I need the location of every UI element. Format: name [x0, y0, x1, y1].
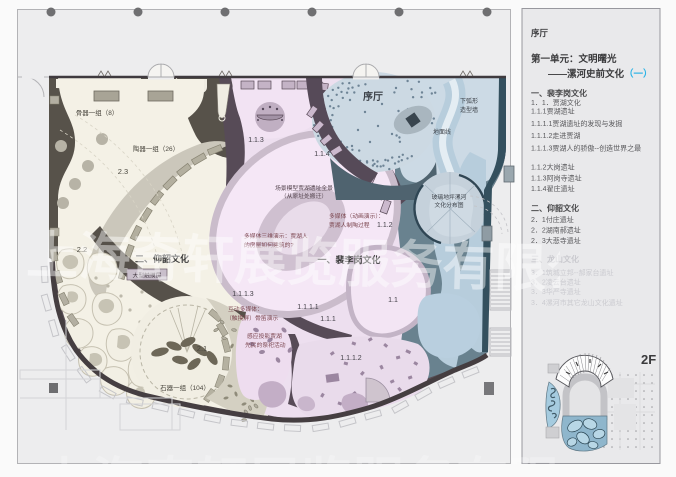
svg-text:1.1.2: 1.1.2: [377, 222, 393, 229]
svg-text:二、仰韶文化: 二、仰韶文化: [531, 203, 579, 213]
svg-text:石器一组（104）: 石器一组（104）: [160, 383, 210, 392]
svg-text:1.1.1.3贾湖人的骄傲--创造世界之最: 1.1.1.3贾湖人的骄傲--创造世界之最: [531, 144, 641, 153]
svg-text:3．4漯河市其它龙山文化遗址: 3．4漯河市其它龙山文化遗址: [531, 298, 623, 307]
svg-text:1.1.3: 1.1.3: [248, 137, 264, 144]
svg-text:玻璃地坪漯河: 玻璃地坪漯河: [432, 193, 467, 201]
svg-text:地面线: 地面线: [433, 128, 451, 136]
svg-text:场景模型贾湖遗址全景: 场景模型贾湖遗址全景: [275, 184, 333, 192]
svg-text:1.1.2大岗遗址: 1.1.2大岗遗址: [531, 163, 575, 172]
svg-text:1.1.1.1贾湖遗址的发现与发掘: 1.1.1.1贾湖遗址的发现与发掘: [531, 119, 622, 128]
svg-text:1.1.3阿岗寺遗址: 1.1.3阿岗寺遗址: [531, 174, 582, 183]
svg-text:1.1.1贾湖遗址: 1.1.1贾湖遗址: [531, 107, 575, 116]
svg-text:骨器一组（8）: 骨器一组（8）: [76, 108, 119, 117]
svg-text:陶器一组（26）: 陶器一组（26）: [133, 144, 179, 153]
svg-text:1.1.4翟庄遗址: 1.1.4翟庄遗址: [531, 184, 575, 193]
svg-text:1.1: 1.1: [388, 297, 398, 304]
svg-text:1．1．贾湖文化: 1．1．贾湖文化: [531, 98, 581, 107]
svg-text:1.1.1.2走进贾湖: 1.1.1.2走进贾湖: [531, 131, 580, 140]
svg-text:2．2湖南郝遗址: 2．2湖南郝遗址: [531, 226, 581, 235]
svg-text:先民的祭祀活动: 先民的祭祀活动: [245, 341, 286, 349]
svg-text:感应投影贾湖: 感应投影贾湖: [247, 332, 282, 340]
svg-text:1.1.1.3: 1.1.1.3: [232, 291, 254, 298]
svg-text:序厅: 序厅: [530, 28, 549, 38]
svg-text:下弧形: 下弧形: [460, 97, 478, 105]
svg-text:2.3: 2.3: [118, 167, 128, 176]
svg-text:2．1付庄遗址: 2．1付庄遗址: [531, 215, 574, 224]
svg-text:——漯河史前文化（一）: ——漯河史前文化（一）: [548, 68, 653, 80]
svg-text:1.1.1.2: 1.1.1.2: [340, 355, 362, 362]
svg-text:1.1.1.1: 1.1.1.1: [297, 304, 319, 311]
svg-text:1.1.4: 1.1.4: [314, 151, 330, 158]
svg-text:2F: 2F: [641, 352, 656, 367]
svg-text:（从原址处搬迁）: （从原址处搬迁）: [281, 192, 327, 200]
svg-text:文化分布图: 文化分布图: [435, 201, 464, 209]
svg-text:序厅: 序厅: [363, 90, 383, 103]
svg-text:1.1.1: 1.1.1: [320, 316, 336, 323]
svg-text:造型墙: 造型墙: [460, 106, 478, 114]
svg-text:一、裴李岗文化: 一、裴李岗文化: [531, 88, 587, 98]
svg-text:（触摸屏）骨笛演示: （触摸屏）骨笛演示: [226, 314, 278, 322]
svg-text:2.1: 2.1: [197, 344, 207, 353]
svg-text:贾湖人制陶过程: 贾湖人制陶过程: [329, 221, 370, 229]
svg-text:互动多媒体：: 互动多媒体：: [228, 305, 263, 313]
svg-text:多媒体（动画演示）：: 多媒体（动画演示）：: [329, 212, 384, 220]
svg-text:第一单元：文明曙光: 第一单元：文明曙光: [531, 53, 617, 65]
